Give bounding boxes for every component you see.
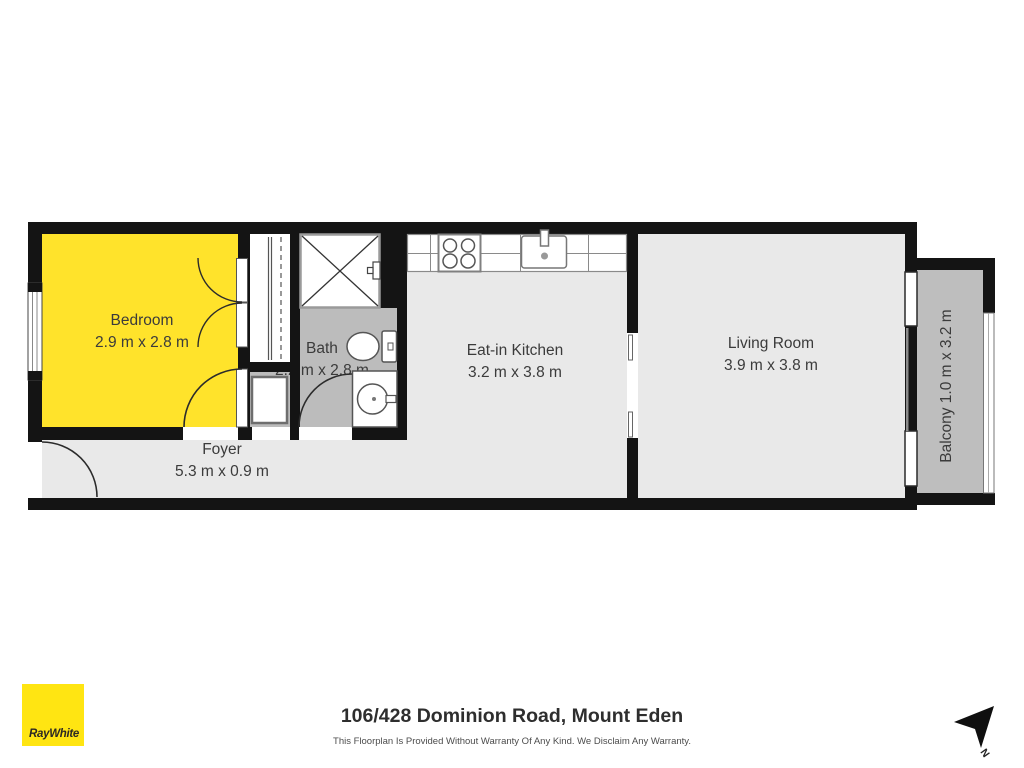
wall-foyer-row (42, 427, 407, 440)
raywhite-logo: RayWhite (22, 684, 84, 746)
foyer-label: Foyer 5.3 m x 0.9 m (175, 439, 269, 483)
wall-bath-right (397, 308, 407, 440)
room-name: Living Room (724, 333, 818, 355)
room-dims: 3.9 m x 3.8 m (724, 355, 818, 377)
raywhite-logo-text: RayWhite (29, 728, 79, 740)
balcony-label: Balcony 1.0 m x 3.2 m (936, 309, 958, 462)
floorplan-page: Bedroom 2.9 m x 2.8 m Bath 2.2 m x 2.8 m… (0, 0, 1024, 768)
wall-bottom (28, 498, 917, 510)
wall-divider-bottom (627, 438, 638, 498)
room-name: Eat-in Kitchen (467, 340, 564, 362)
room-dims: 3.2 m x 3.8 m (467, 362, 564, 384)
address-title: 106/428 Dominion Road, Mount Eden (341, 705, 683, 728)
balcony-window (984, 313, 995, 493)
wall-bedroom-right (238, 234, 250, 440)
wall-closet-bottom (240, 362, 300, 372)
room-dims: 1.0 m x 3.2 m (938, 309, 955, 403)
bedroom-label: Bedroom 2.9 m x 2.8 m (95, 310, 189, 354)
wall-left (28, 222, 42, 510)
room-name: Bedroom (95, 310, 189, 332)
north-label: N (978, 747, 992, 760)
living-room-label: Living Room 3.9 m x 3.8 m (724, 333, 818, 377)
wall-bath-right-top (380, 222, 407, 308)
wall-right-living (905, 222, 917, 498)
wall-balcony-bottom (917, 493, 995, 505)
north-arrow-icon: N (950, 700, 1006, 762)
room-name: Balcony (938, 408, 955, 463)
wall-balcony-stub (983, 258, 995, 313)
room-dims: 5.3 m x 0.9 m (175, 461, 269, 483)
room-dims: 2.9 m x 2.8 m (95, 332, 189, 354)
room-name: Foyer (175, 439, 269, 461)
wall-divider-top (627, 234, 638, 333)
disclaimer-text: This Floorplan Is Provided Without Warra… (333, 736, 691, 747)
wall-closet-right (290, 234, 300, 440)
kitchen-label: Eat-in Kitchen 3.2 m x 3.8 m (467, 340, 564, 384)
wall-top (28, 222, 917, 234)
